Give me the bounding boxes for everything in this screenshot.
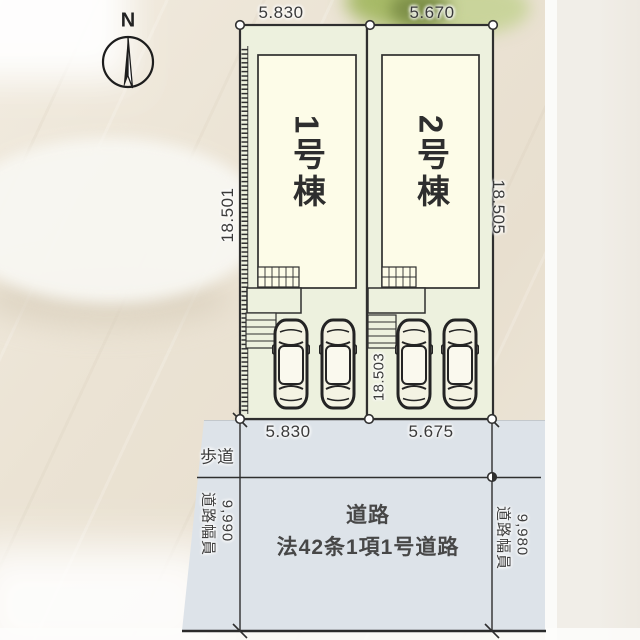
road-subtitle: 法42条1項1号道路 — [277, 531, 460, 561]
center-depth-dim: 18.503 — [371, 353, 388, 401]
site-plan-image: N 5.830 5.670 18.501 18.505 18.503 5.830… — [0, 0, 640, 640]
lot-1-width-top: 5.830 — [258, 3, 303, 23]
entrance-porch-1 — [258, 267, 299, 287]
boundary-hatch-strip — [242, 46, 248, 414]
lot-1-width-bottom: 5.830 — [265, 422, 310, 442]
unit-2-label: 2号棟 — [415, 115, 448, 211]
lot-1-depth-dim: 18.501 — [218, 188, 238, 243]
sidewalk-label: 歩道 — [200, 443, 234, 468]
lot-2-width-top: 5.670 — [409, 3, 454, 23]
entrance-platform-2 — [368, 288, 425, 313]
entrance-porch-2 — [382, 267, 416, 287]
road-width-right-label: 道路幅員 — [494, 506, 515, 570]
car-icon — [273, 320, 310, 408]
entrance-steps-2 — [368, 315, 396, 348]
compass-north-label: N — [121, 10, 135, 33]
road-width-right-value: 9,980 — [514, 514, 531, 557]
compass-icon — [103, 37, 153, 88]
car-icon — [442, 320, 479, 408]
road-title: 道路 — [346, 499, 390, 529]
entrance-steps-1 — [246, 313, 276, 348]
road-width-left-label: 道路幅員 — [199, 492, 220, 556]
car-icon — [396, 320, 433, 408]
lot-2-depth-dim: 18.505 — [488, 180, 508, 235]
road-width-left-value: 9,990 — [219, 500, 236, 543]
car-icon — [320, 320, 357, 408]
lot-2-width-bottom: 5.675 — [408, 422, 453, 442]
unit-1-label: 1号棟 — [291, 115, 324, 211]
entrance-platform-1 — [247, 288, 301, 313]
